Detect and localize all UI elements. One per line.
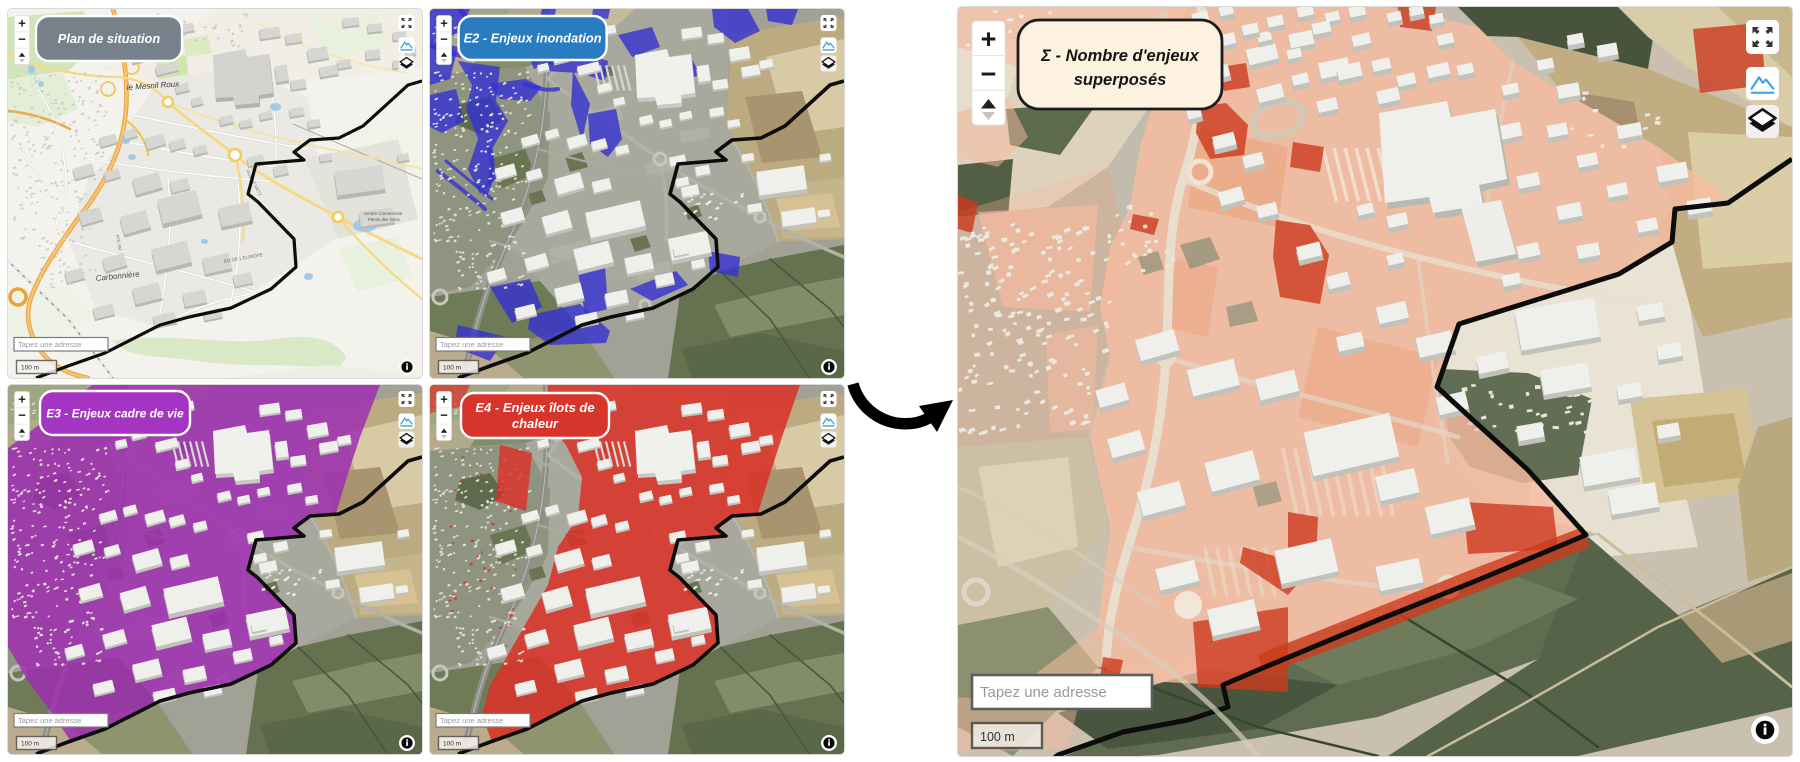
svg-text:Tapez une adresse: Tapez une adresse xyxy=(440,340,503,349)
svg-text:100 m: 100 m xyxy=(980,730,1015,744)
svg-text:Tapez une adresse: Tapez une adresse xyxy=(440,716,503,725)
svg-text:100 m: 100 m xyxy=(21,741,39,748)
svg-text:−: − xyxy=(440,408,448,423)
svg-text:−: − xyxy=(981,59,997,89)
svg-text:Centre Commercial: Centre Commercial xyxy=(364,211,402,216)
svg-text:−: − xyxy=(18,408,26,423)
svg-text:Tapez une adresse: Tapez une adresse xyxy=(18,716,81,725)
svg-text:−: − xyxy=(440,32,448,47)
svg-text:Tapez une adresse: Tapez une adresse xyxy=(980,684,1107,701)
svg-text:+: + xyxy=(981,24,997,54)
svg-text:100 m: 100 m xyxy=(443,741,461,748)
svg-text:E3 - Enjeux cadre de vie: E3 - Enjeux cadre de vie xyxy=(46,407,184,421)
svg-text:Σ - Nombre d'enjeux: Σ - Nombre d'enjeux xyxy=(1040,47,1199,65)
svg-text:−: − xyxy=(18,32,26,47)
svg-text:100 m: 100 m xyxy=(21,365,39,372)
svg-text:100 m: 100 m xyxy=(443,365,461,372)
svg-text:E2 - Enjeux inondation: E2 - Enjeux inondation xyxy=(464,31,602,46)
svg-text:+: + xyxy=(18,392,26,407)
svg-text:Tapez une adresse: Tapez une adresse xyxy=(18,340,81,349)
svg-text:+: + xyxy=(18,16,26,31)
svg-text:E4 - Enjeux îlots de: E4 - Enjeux îlots de xyxy=(475,400,594,415)
svg-text:chaleur: chaleur xyxy=(512,416,559,431)
svg-text:superposés: superposés xyxy=(1074,71,1167,89)
svg-text:Plan de situation: Plan de situation xyxy=(58,31,161,46)
svg-text:+: + xyxy=(440,392,448,407)
svg-text:Parvis des Sens: Parvis des Sens xyxy=(368,217,401,222)
svg-text:+: + xyxy=(440,16,448,31)
